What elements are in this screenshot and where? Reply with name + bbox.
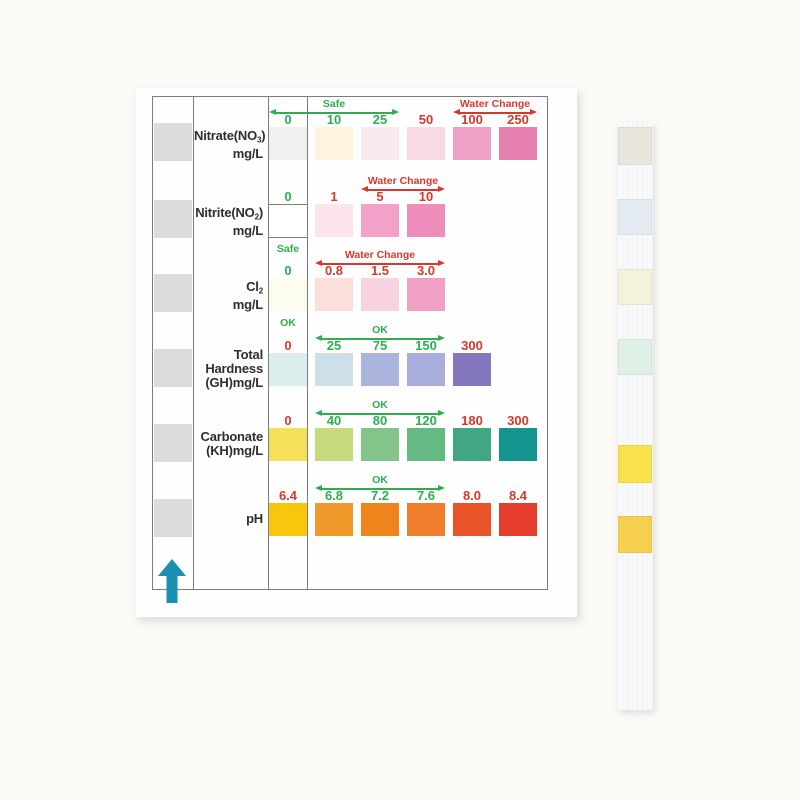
value-label-nitrate-250: 250	[494, 113, 542, 126]
row-label-nitrite: Nitrite(NO2)mg/L	[194, 206, 263, 238]
swatch-nitrite-1	[315, 204, 353, 237]
value-label-nitrate-10: 10	[310, 113, 358, 126]
swatch-ph-8.4	[499, 503, 537, 536]
swatch-total-hardness-300	[453, 353, 491, 386]
value-label-ph-6.8: 6.8	[310, 489, 358, 502]
strip-channel-pad-total-hardness	[154, 349, 192, 387]
zero-value-chlorine: 0	[264, 264, 312, 277]
swatch-nitrate-10	[315, 127, 353, 160]
up-arrow-icon	[157, 559, 187, 603]
row-label-chlorine: Cl2mg/L	[194, 280, 263, 312]
swatch-total-hardness-25	[315, 353, 353, 386]
swatch-chlorine-1.5	[361, 278, 399, 311]
swatch-total-hardness-75	[361, 353, 399, 386]
swatch-chlorine-0.8	[315, 278, 353, 311]
strip-pad-total-hardness	[618, 339, 652, 375]
value-label-total-hardness-25: 25	[310, 339, 358, 352]
annotation-label-carbonate-0: OK	[325, 400, 435, 411]
strip-channel-pad-nitrate	[154, 123, 192, 161]
row-label-total-hardness: TotalHardness(GH)mg/L	[194, 348, 263, 390]
value-label-nitrite-10: 10	[402, 190, 450, 203]
strip-pad-nitrate	[618, 127, 652, 165]
swatch-ph-7.6	[407, 503, 445, 536]
value-label-total-hardness-75: 75	[356, 339, 404, 352]
zero-swatch-chlorine	[269, 278, 307, 311]
row-label-ph: pH	[194, 512, 263, 526]
zero-value-total-hardness: 0	[264, 339, 312, 352]
value-label-carbonate-120: 120	[402, 414, 450, 427]
value-label-carbonate-80: 80	[356, 414, 404, 427]
swatch-carbonate-120	[407, 428, 445, 461]
annotation-label-ph-0: OK	[325, 475, 435, 486]
zero-value-ph: 6.4	[264, 489, 312, 502]
swatch-nitrite-5	[361, 204, 399, 237]
test-strip	[617, 122, 653, 710]
swatch-nitrate-25	[361, 127, 399, 160]
swatch-carbonate-80	[361, 428, 399, 461]
value-label-ph-8.0: 8.0	[448, 489, 496, 502]
value-label-nitrite-1: 1	[310, 190, 358, 203]
swatch-ph-8.0	[453, 503, 491, 536]
value-label-nitrite-5: 5	[356, 190, 404, 203]
swatch-chlorine-3.0	[407, 278, 445, 311]
value-label-ph-7.2: 7.2	[356, 489, 404, 502]
strip-pad-nitrite	[618, 199, 652, 235]
swatch-carbonate-40	[315, 428, 353, 461]
zero-value-nitrite: 0	[264, 190, 312, 203]
annotation-label-chlorine-0: Water Change	[325, 250, 435, 261]
zero-swatch-carbonate	[269, 428, 307, 461]
strip-channel-pad-carbonate	[154, 424, 192, 462]
arrow-head-left-nitrate-0	[269, 109, 276, 115]
value-label-total-hardness-150: 150	[402, 339, 450, 352]
swatch-nitrite-10	[407, 204, 445, 237]
zero-swatch-ph	[269, 503, 307, 536]
strip-pad-chlorine	[618, 269, 652, 305]
row-label-nitrate: Nitrate(NO3)mg/L	[194, 129, 263, 161]
swatch-nitrate-100	[453, 127, 491, 160]
annotation-label-nitrate-0: Safe	[279, 99, 389, 110]
swatch-nitrate-250	[499, 127, 537, 160]
value-label-nitrate-25: 25	[356, 113, 404, 126]
test-strip-color-chart: Nitrate(NO3)mg/L0SafeWater Change1025501…	[0, 0, 800, 800]
value-label-carbonate-40: 40	[310, 414, 358, 427]
value-label-carbonate-180: 180	[448, 414, 496, 427]
value-label-total-hardness-300: 300	[448, 339, 496, 352]
row-label-carbonate: Carbonate(KH)mg/L	[194, 430, 263, 458]
zero-value-carbonate: 0	[264, 414, 312, 427]
value-label-carbonate-300: 300	[494, 414, 542, 427]
swatch-carbonate-180	[453, 428, 491, 461]
value-label-chlorine-3.0: 3.0	[402, 264, 450, 277]
strip-channel-pad-chlorine	[154, 274, 192, 312]
strip-pad-ph	[618, 516, 652, 553]
zero-swatch-nitrite	[269, 204, 307, 238]
swatch-ph-7.2	[361, 503, 399, 536]
zero-swatch-nitrate	[269, 127, 307, 160]
value-label-nitrate-100: 100	[448, 113, 496, 126]
value-label-ph-8.4: 8.4	[494, 489, 542, 502]
value-label-chlorine-0.8: 0.8	[310, 264, 358, 277]
swatch-nitrate-50	[407, 127, 445, 160]
swatch-ph-6.8	[315, 503, 353, 536]
swatch-carbonate-300	[499, 428, 537, 461]
value-label-ph-7.6: 7.6	[402, 489, 450, 502]
strip-pad-carbonate	[618, 445, 652, 483]
value-label-nitrate-50: 50	[402, 113, 450, 126]
strip-channel-pad-ph	[154, 499, 192, 537]
swatch-total-hardness-150	[407, 353, 445, 386]
zero-swatch-total-hardness	[269, 353, 307, 386]
strip-channel-pad-nitrite	[154, 200, 192, 238]
annotation-label-total-hardness-0: OK	[325, 325, 435, 336]
value-label-chlorine-1.5: 1.5	[356, 264, 404, 277]
